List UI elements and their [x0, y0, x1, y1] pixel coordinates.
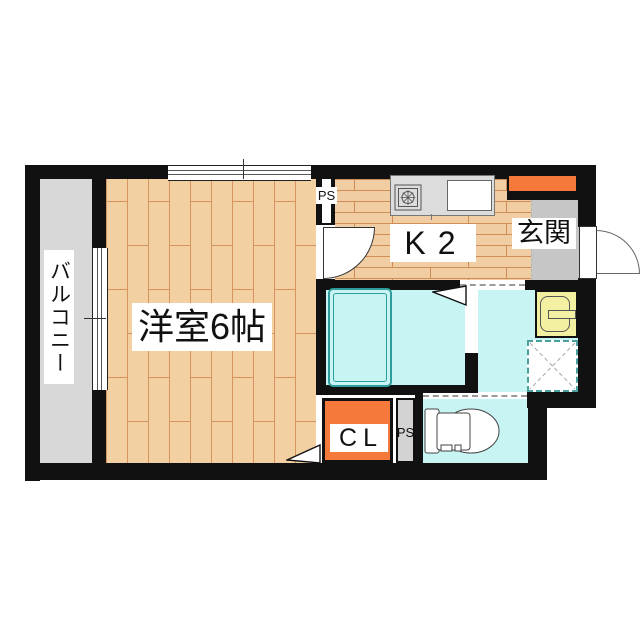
- kitchen-sink: [447, 180, 492, 211]
- stove-icon: [394, 184, 422, 211]
- closet-label: CL: [330, 424, 388, 452]
- counter-divider-tick: [431, 214, 432, 220]
- wall-right-upper: [578, 165, 596, 227]
- opening-kitchen-washroom-dashes: [460, 284, 525, 286]
- toilet-icon: [424, 406, 502, 456]
- wall-right-lower: [578, 278, 596, 408]
- entrance-door-arc-icon: [596, 230, 640, 274]
- balcony-window-tick: [84, 318, 106, 319]
- shoe-cabinet: [507, 174, 578, 193]
- wall-left: [25, 165, 40, 481]
- washer-pan-icon: [527, 340, 578, 392]
- balcony-window-icon: [92, 248, 108, 390]
- wall-under-shoe-cabinet: [507, 193, 578, 200]
- vanity-unit: [535, 290, 578, 338]
- wall-kitchen-bottom-right: [525, 280, 578, 290]
- entrance-label: 玄関: [512, 218, 576, 249]
- wall-toilet-right: [528, 392, 547, 473]
- floor-plan: バルコニー 洋室6帖 K2 玄関 CL PS PS: [0, 0, 640, 640]
- opening-toilet-top-dashes: [423, 395, 527, 397]
- wall-bottom: [25, 463, 547, 480]
- bathtub-icon: [328, 288, 392, 387]
- wall-bath-wash-lower: [465, 353, 478, 390]
- pipe-space-top-label: PS: [316, 187, 337, 204]
- window-top-tick: [243, 159, 244, 179]
- kitchen-label: K2: [390, 224, 476, 262]
- western-room-label: 洋室6帖: [132, 303, 272, 351]
- window-top-icon: [168, 165, 311, 181]
- vanity-faucet: [548, 310, 576, 319]
- bath-folding-door-icon: [432, 285, 468, 307]
- balcony-label: バルコニー: [44, 250, 74, 384]
- wall-ps-right: [415, 392, 423, 463]
- pipe-space-bottom-label: PS: [395, 424, 416, 440]
- entrance-door-leaf-icon: [579, 226, 597, 279]
- wall-bath-left: [316, 280, 326, 395]
- closet-folding-door-icon: [286, 444, 322, 465]
